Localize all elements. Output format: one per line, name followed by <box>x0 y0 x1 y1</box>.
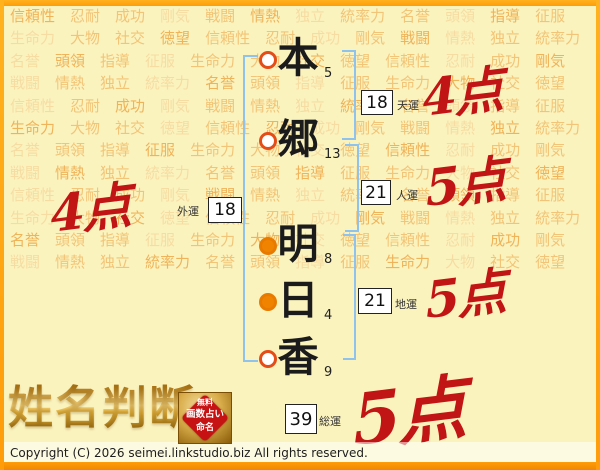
chiun-value-box: 21 <box>358 288 392 314</box>
watermark-word: 指導 <box>100 140 130 162</box>
watermark-word: 征服 <box>145 230 175 252</box>
watermark-word: 剛気 <box>535 140 565 162</box>
watermark-word: 統率力 <box>535 28 580 50</box>
free-naming-seal-badge[interactable]: 無料 画数占い 命名 <box>178 392 232 444</box>
watermark-word: 忍耐 <box>445 230 475 252</box>
seal-line3: 命名 <box>179 422 231 434</box>
site-logo[interactable]: 姓名判断 <box>8 383 196 433</box>
name-kanji: 日 <box>277 279 319 322</box>
name-char-item: 本5 <box>256 37 366 83</box>
copyright-text: Copyright (C) 2026 seimei.linkstudio.biz… <box>10 446 368 460</box>
watermark-word: 戦闘 <box>400 208 430 230</box>
seal-line2: 画数占い <box>179 409 231 422</box>
watermark-word: 剛気 <box>160 96 190 118</box>
stroke-count: 8 <box>324 252 332 267</box>
watermark-word: 信頼性 <box>205 28 250 50</box>
watermark-word: 独立 <box>100 252 130 274</box>
frame-right <box>596 0 600 470</box>
jinun-score: 5点 <box>423 139 505 221</box>
watermark-word: 大物 <box>70 118 100 140</box>
watermark-word: 大物 <box>70 28 100 50</box>
tenun-value-box: 18 <box>361 90 393 115</box>
filled-circle-icon <box>259 293 277 311</box>
watermark-word: 忍耐 <box>70 96 100 118</box>
name-char-item: 香9 <box>256 336 366 382</box>
watermark-word: 征服 <box>535 185 565 207</box>
open-circle-icon <box>259 350 277 368</box>
watermark-word: 生命力 <box>10 28 55 50</box>
jinun-label: 人運 <box>396 187 418 203</box>
frame-top <box>0 0 600 6</box>
watermark-word: 独立 <box>295 185 325 207</box>
watermark-word: 忍耐 <box>70 6 100 28</box>
watermark-word: 生命力 <box>190 51 235 73</box>
name-kanji: 本 <box>277 37 319 80</box>
watermark-word: 生命力 <box>10 118 55 140</box>
soun-label: 総運 <box>319 413 341 429</box>
stroke-count: 5 <box>324 66 332 81</box>
watermark-word: 情熱 <box>445 28 475 50</box>
watermark-word: 名誉 <box>10 230 40 252</box>
watermark-word: 統率力 <box>145 163 190 185</box>
open-circle-icon <box>259 51 277 69</box>
watermark-word: 社交 <box>115 28 145 50</box>
watermark-word: 成功 <box>115 6 145 28</box>
watermark-word: 情熱 <box>250 6 280 28</box>
watermark-word: 名誉 <box>205 252 235 274</box>
watermark-word: 頭領 <box>55 140 85 162</box>
watermark-word: 徳望 <box>535 73 565 95</box>
watermark-word: 名誉 <box>10 51 40 73</box>
watermark-word: 信頼性 <box>10 6 55 28</box>
watermark-word: 統率力 <box>145 73 190 95</box>
chiun-label: 地運 <box>395 296 417 312</box>
watermark-word: 剛気 <box>535 230 565 252</box>
watermark-word: 剛気 <box>160 6 190 28</box>
seal-text: 無料 画数占い 命名 <box>179 398 231 434</box>
open-circle-icon <box>259 132 277 150</box>
watermark-word: 名誉 <box>400 6 430 28</box>
watermark-word: 徳望 <box>160 118 190 140</box>
gaiun-value-box: 18 <box>208 197 242 223</box>
name-char-item: 郷13 <box>256 118 366 164</box>
name-char-item: 日4 <box>256 279 366 325</box>
watermark-word: 情熱 <box>55 73 85 95</box>
watermark-word: 統率力 <box>535 208 580 230</box>
watermark-word: 指導 <box>295 163 325 185</box>
watermark-word: 征服 <box>145 51 175 73</box>
watermark-word: 成功 <box>490 230 520 252</box>
watermark-word: 頭領 <box>445 6 475 28</box>
watermark-word: 統率力 <box>340 6 385 28</box>
watermark-word: 統率力 <box>535 118 580 140</box>
stroke-count: 4 <box>324 308 332 323</box>
watermark-word: 戦闘 <box>10 163 40 185</box>
chiun-score: 5点 <box>423 251 505 333</box>
frame-bottom <box>0 462 600 470</box>
watermark-word: 指導 <box>100 51 130 73</box>
watermark-word: 戦闘 <box>205 6 235 28</box>
watermark-word: 統率力 <box>145 252 190 274</box>
watermark-word: 戦闘 <box>10 252 40 274</box>
tenun-score: 4点 <box>420 49 502 131</box>
frame-left <box>0 0 4 470</box>
soun-value-box: 39 <box>285 404 317 434</box>
name-kanji: 郷 <box>277 118 319 161</box>
watermark-word: 指導 <box>490 6 520 28</box>
stroke-count: 13 <box>324 147 341 162</box>
watermark-word: 名誉 <box>205 73 235 95</box>
watermark-word: 生命力 <box>190 140 235 162</box>
seal-line1: 無料 <box>179 398 231 409</box>
watermark-word: 成功 <box>115 96 145 118</box>
watermark-word: 独立 <box>295 6 325 28</box>
watermark-word: 徳望 <box>160 28 190 50</box>
watermark-word: 徳望 <box>535 163 565 185</box>
watermark-word: 社交 <box>115 118 145 140</box>
filled-circle-icon <box>259 237 277 255</box>
watermark-word: 戦闘 <box>10 73 40 95</box>
watermark-word: 剛気 <box>535 51 565 73</box>
watermark-word: 徳望 <box>535 252 565 274</box>
name-kanji: 香 <box>277 336 319 379</box>
watermark-word: 情熱 <box>55 252 85 274</box>
watermark-word: 生命力 <box>10 208 55 230</box>
watermark-word: 名誉 <box>10 140 40 162</box>
watermark-word: 生命力 <box>190 230 235 252</box>
gaiun-score: 4点 <box>48 165 130 247</box>
watermark-word: 信頼性 <box>385 230 430 252</box>
watermark-word: 戦闘 <box>400 28 430 50</box>
watermark-word: 頭領 <box>55 51 85 73</box>
watermark-word: 名誉 <box>205 163 235 185</box>
watermark-word: 征服 <box>145 140 175 162</box>
watermark-word: 征服 <box>535 6 565 28</box>
seimei-result-page: 信頼性忍耐成功剛気戦闘情熱独立統率力名誉頭領指導征服生命力大物社交徳望信頼性忍耐… <box>0 0 600 470</box>
gaiun-label: 外運 <box>177 203 199 219</box>
watermark-word: 独立 <box>100 73 130 95</box>
name-char-item: 明8 <box>256 223 366 269</box>
name-kanji: 明 <box>277 223 319 266</box>
watermark-word: 征服 <box>535 96 565 118</box>
watermark-word: 信頼性 <box>10 96 55 118</box>
stroke-count: 9 <box>324 365 332 380</box>
watermark-word: 戦闘 <box>205 96 235 118</box>
watermark-word: 独立 <box>490 28 520 50</box>
jinun-value-box: 21 <box>361 180 391 205</box>
tenun-label: 天運 <box>397 97 419 113</box>
